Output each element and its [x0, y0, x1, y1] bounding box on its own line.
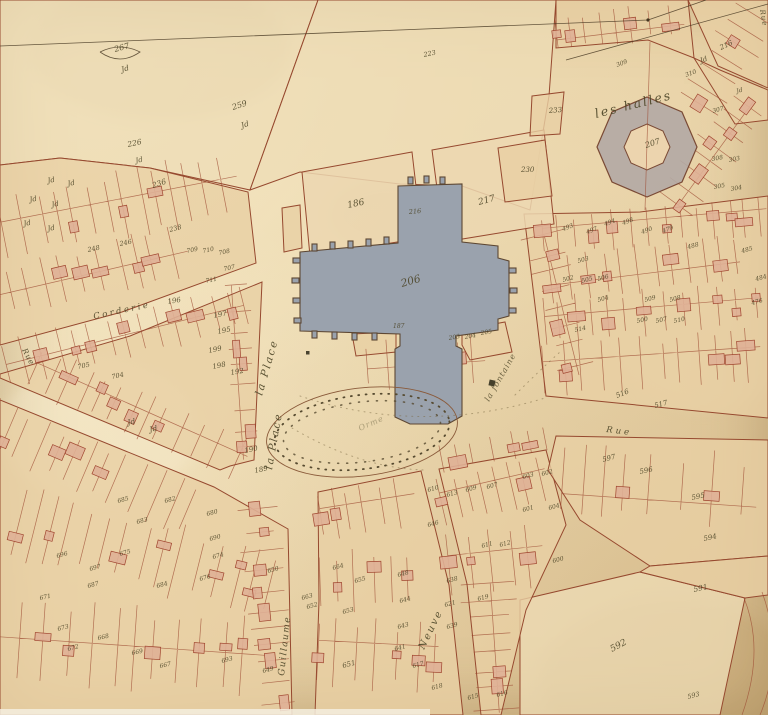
- cadastral-map: 267Jd259Jd226Jd236JdJdJdJdJdJd2482462382…: [0, 0, 768, 715]
- building-footprint: [737, 340, 756, 351]
- parcel-number: 187: [393, 323, 405, 330]
- parcel-number: 216: [407, 207, 421, 216]
- parcel-number: 600: [552, 555, 565, 565]
- building-footprint: [713, 295, 723, 304]
- building-footprint: [194, 643, 205, 654]
- building-footprint: [552, 30, 562, 39]
- building-footprint: [723, 127, 737, 141]
- building-footprint: [725, 354, 740, 365]
- area-label: Orme: [357, 414, 385, 433]
- parcel-number: 638: [446, 575, 459, 585]
- building-footprint: [259, 527, 269, 536]
- building-footprint: [662, 253, 679, 265]
- street-label: Rue: [605, 425, 633, 438]
- parcel-number: 196: [167, 296, 182, 306]
- building-footprint: [732, 308, 741, 317]
- building-footprint: [708, 354, 725, 365]
- building-footprint: [313, 512, 330, 527]
- building-footprint: [117, 321, 130, 335]
- building-footprint: [85, 340, 97, 353]
- parcel-number: 308: [711, 154, 724, 163]
- building-footprint: [248, 501, 261, 516]
- parcel-number: 610: [427, 484, 440, 494]
- parcel-number: 190: [244, 444, 259, 455]
- building-footprint: [713, 259, 729, 272]
- building-footprint: [507, 443, 520, 453]
- building-footprint: [279, 695, 290, 711]
- building-footprint: [118, 205, 128, 218]
- parcel-number: 233: [547, 106, 563, 115]
- area-label: la fontaine: [483, 352, 518, 403]
- building-footprint: [703, 136, 717, 150]
- market-hall-octagon: [597, 42, 697, 210]
- parcel-number: 652: [306, 601, 319, 611]
- building-footprint: [440, 555, 458, 569]
- building-footprint: [601, 317, 615, 330]
- building-footprint: [519, 552, 536, 566]
- building-footprint: [238, 638, 248, 649]
- paper-edge: [0, 709, 430, 715]
- building-footprint: [616, 486, 630, 498]
- parcel-number: 303: [728, 155, 741, 164]
- parcel-number: 230: [520, 166, 535, 174]
- building-footprint: [333, 582, 342, 592]
- building-footprint: [330, 508, 341, 521]
- building-footprint: [493, 666, 506, 678]
- building-footprint: [252, 587, 262, 599]
- building-footprint: [44, 530, 54, 541]
- parcel-number: 203: [447, 333, 461, 342]
- parcel-number: 663: [301, 592, 314, 602]
- building-footprint: [706, 210, 719, 221]
- building-footprint: [689, 164, 708, 185]
- parcel-number: 621: [444, 599, 457, 609]
- parcel-number: 615: [467, 692, 480, 702]
- building-footprint: [35, 633, 51, 642]
- map-canvas: 267Jd259Jd226Jd236JdJdJdJdJdJd2482462382…: [0, 0, 768, 715]
- building-footprint: [220, 643, 232, 651]
- building-footprint: [232, 340, 240, 358]
- building-footprint: [71, 346, 81, 356]
- parcel-number: 711: [205, 276, 218, 285]
- building-footprint: [735, 217, 753, 226]
- building-footprint: [435, 496, 448, 507]
- parcel-number: 307: [712, 105, 725, 115]
- street-label: Rue: [20, 346, 37, 367]
- building-footprint: [703, 491, 719, 502]
- building-footprint: [312, 653, 324, 663]
- building-footprint: [253, 564, 267, 576]
- building-footprint: [68, 221, 79, 233]
- building-footprint: [144, 646, 160, 659]
- parcel-number: 310: [684, 68, 697, 79]
- building-footprint: [636, 306, 651, 315]
- parcel-number: 304: [730, 184, 743, 193]
- building-footprint: [561, 363, 572, 374]
- building-footprint: [690, 94, 708, 113]
- building-footprint: [522, 440, 539, 450]
- building-footprint: [426, 662, 442, 673]
- building-footprint: [245, 424, 256, 438]
- building-footprint: [662, 22, 680, 32]
- building-footprint: [367, 561, 381, 572]
- building-footprint: [567, 311, 585, 322]
- building-footprint: [543, 284, 562, 294]
- parcel-number: 309: [615, 58, 628, 69]
- building-footprint: [258, 638, 271, 650]
- parcel-number: 305: [713, 182, 726, 191]
- curved-road-edges: [742, 592, 768, 715]
- building-footprint: [565, 30, 576, 43]
- building-footprint: [623, 17, 636, 30]
- building-footprint: [258, 603, 271, 621]
- building-footprint: [533, 224, 551, 238]
- building-footprint: [467, 557, 476, 565]
